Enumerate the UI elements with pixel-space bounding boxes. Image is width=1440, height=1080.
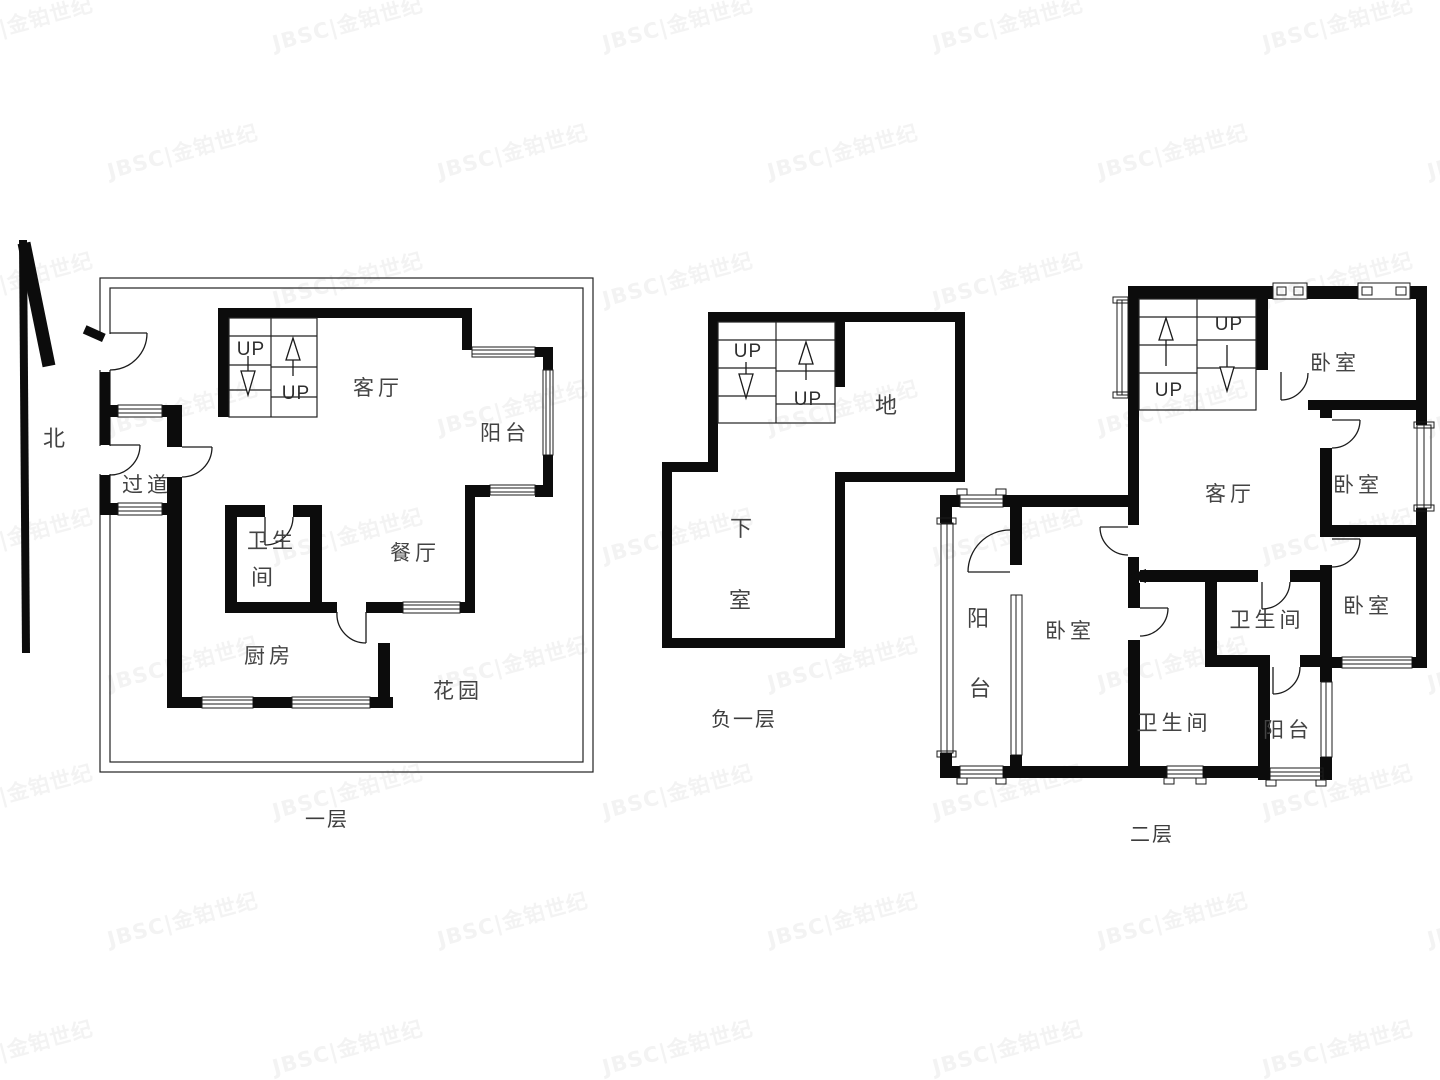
floor2-up-left: UP	[1155, 380, 1183, 401]
floor2-bedroom-top-label: 卧室	[1310, 351, 1360, 375]
basement-stairs: UP UP	[718, 322, 835, 423]
floor1-bath-label-line2: 间	[251, 565, 273, 590]
floor2-bedroom-mid-label: 卧室	[1333, 473, 1383, 497]
floor2-doors	[968, 372, 1360, 694]
down-arrow-icon	[739, 374, 753, 398]
floor2-living-label: 客厅	[1205, 482, 1255, 506]
floor2-bath-left-label: 卫生间	[1137, 711, 1212, 735]
basement-title: 负一层	[711, 708, 777, 731]
floor1-hallway-label: 过道	[122, 473, 172, 497]
floor2-balcony-bottom-label: 阳台	[1263, 718, 1313, 742]
floor2-balcony-left-label-1: 阳	[967, 606, 989, 631]
floor1-garden-boundary	[83, 278, 593, 772]
north-arrow: 北	[23, 240, 65, 653]
floorplan-drawing: 北	[0, 0, 1440, 1080]
basement-room-char2: 下	[730, 516, 752, 541]
basement-room-char3: 室	[729, 588, 751, 613]
floor1-balcony-label: 阳台	[480, 421, 530, 445]
floor1-kitchen-label: 厨房	[244, 644, 294, 668]
floor1-up-left: UP	[237, 339, 265, 360]
floor1-walls	[100, 308, 553, 708]
floorplan-page: JBSC|金铂世纪JBSC|金铂世纪JBSC|金铂世纪JBSC|金铂世纪JBSC…	[0, 0, 1440, 1080]
floor2-up-right: UP	[1215, 314, 1243, 335]
basement-up-right: UP	[794, 389, 822, 410]
floor2-bath-center-label: 卫生间	[1230, 608, 1305, 632]
floor2-bedroom-left-label: 卧室	[1045, 619, 1095, 643]
floor1-plan: UP UP 客厅 阳台 过道 卫生 间 餐厅 厨房 花园 一层	[83, 278, 593, 831]
basement-walls	[662, 312, 965, 648]
floor2-title: 二层	[1130, 824, 1174, 846]
up-arrow-icon	[799, 342, 813, 364]
floor1-up-right: UP	[282, 383, 310, 404]
basement-plan: UP UP 地 下 室 负一层	[662, 312, 965, 731]
down-arrow-icon	[1220, 367, 1234, 391]
floor1-living-label: 客厅	[353, 376, 403, 400]
north-label: 北	[43, 426, 65, 451]
up-arrow-icon	[286, 338, 300, 360]
gate-stub	[83, 325, 106, 342]
down-arrow-icon	[241, 371, 255, 395]
basement-up-left: UP	[734, 341, 762, 362]
floor1-title: 一层	[305, 809, 349, 831]
floor1-bath-label-line1: 卫生	[247, 529, 297, 553]
floor2-plan: UP UP 客厅 卧室 卧室 卧室 卧室 卫生间 卫生间 阳台 阳 台 二层	[937, 283, 1434, 846]
floor2-stairs: UP UP	[1139, 299, 1256, 410]
floor2-bedroom-bottom-label: 卧室	[1343, 594, 1393, 618]
floor1-stairs: UP UP	[229, 318, 317, 417]
floor1-dining-label: 餐厅	[390, 541, 440, 565]
floor2-balcony-left-label-2: 台	[969, 676, 991, 701]
floor1-garden-label: 花园	[433, 679, 483, 703]
up-arrow-icon	[1159, 318, 1173, 340]
basement-room-char1: 地	[875, 393, 897, 418]
